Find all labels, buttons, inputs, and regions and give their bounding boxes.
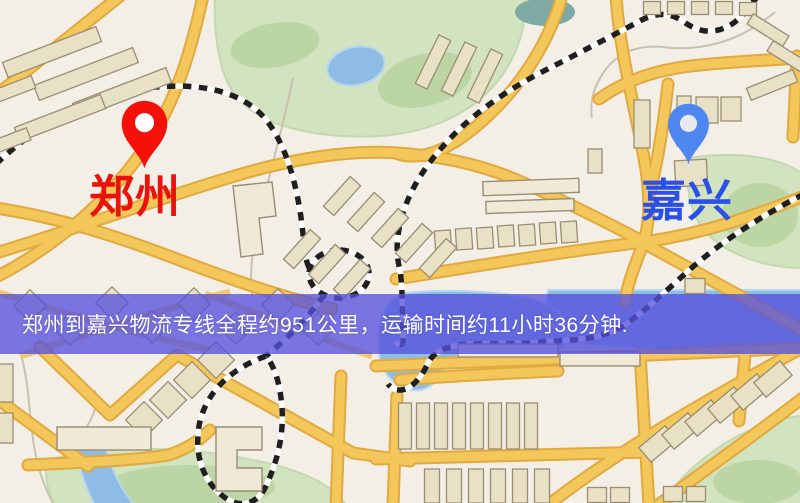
route-info-banner: 郑州到嘉兴物流专线全程约951公里，运输时间约11小时36分钟. [0, 294, 800, 354]
route-info-text: 郑州到嘉兴物流专线全程约951公里，运输时间约11小时36分钟. [0, 309, 628, 339]
origin-pin-icon[interactable] [117, 99, 172, 170]
base-map [0, 0, 800, 503]
destination-pin-body [668, 104, 709, 164]
origin-city-label: 郑州 [89, 174, 181, 219]
map-image: 郑州到嘉兴物流专线全程约951公里，运输时间约11小时36分钟. 郑州 嘉兴 [0, 0, 800, 503]
destination-pin-icon[interactable] [664, 102, 713, 166]
origin-pin-dot [135, 113, 154, 132]
destination-city-label: 嘉兴 [641, 178, 733, 223]
origin-pin-body [122, 101, 168, 168]
destination-pin-dot [680, 115, 697, 132]
